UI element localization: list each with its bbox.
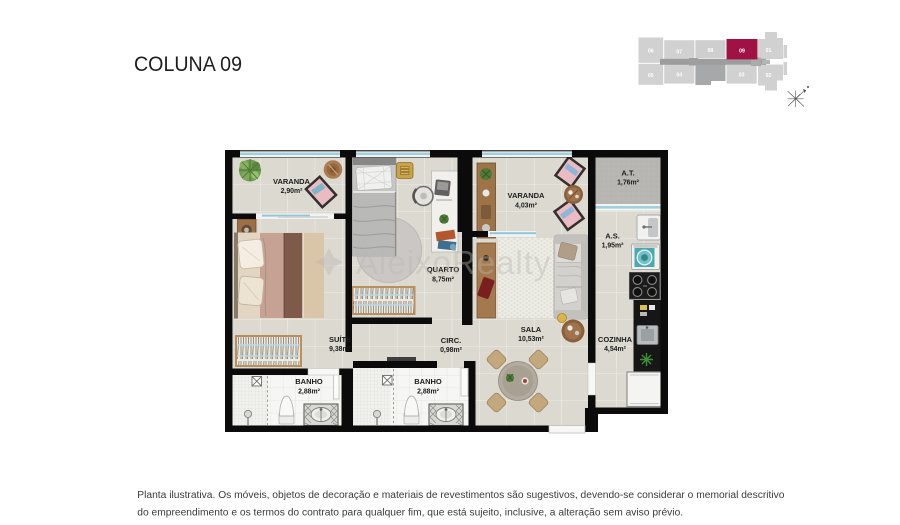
svg-text:0,98m²: 0,98m² bbox=[440, 347, 463, 354]
svg-text:1,76m²: 1,76m² bbox=[617, 180, 640, 187]
svg-text:2,88m²: 2,88m² bbox=[417, 389, 440, 396]
svg-text:2,90m²: 2,90m² bbox=[281, 188, 304, 195]
svg-text:08: 08 bbox=[708, 48, 714, 54]
svg-text:05: 05 bbox=[648, 73, 654, 79]
svg-text:AleixoRealty: AleixoRealty bbox=[356, 244, 551, 281]
svg-text:BANHO: BANHO bbox=[295, 377, 323, 386]
svg-text:2,88m²: 2,88m² bbox=[298, 389, 321, 396]
svg-text:A.T.: A.T. bbox=[621, 169, 634, 178]
svg-text:A.S.: A.S. bbox=[605, 232, 620, 241]
svg-text:do empreendimento e os termos: do empreendimento e os termos do contrat… bbox=[137, 508, 683, 519]
svg-text:COLUNA 09: COLUNA 09 bbox=[134, 52, 242, 76]
svg-text:10,53m²: 10,53m² bbox=[518, 336, 544, 343]
svg-text:VARANDA: VARANDA bbox=[508, 191, 546, 200]
svg-text:04: 04 bbox=[676, 73, 682, 79]
svg-text:VARANDA: VARANDA bbox=[273, 177, 311, 186]
svg-text:4,54m²: 4,54m² bbox=[604, 346, 627, 353]
svg-text:CIRC.: CIRC. bbox=[441, 336, 461, 345]
svg-text:07: 07 bbox=[676, 50, 682, 56]
svg-text:Planta ilustrativa. Os móveis,: Planta ilustrativa. Os móveis, objetos d… bbox=[137, 490, 784, 501]
svg-text:COZINHA: COZINHA bbox=[598, 335, 633, 344]
svg-text:09: 09 bbox=[739, 48, 745, 54]
svg-text:06: 06 bbox=[648, 49, 654, 55]
svg-text:SALA: SALA bbox=[521, 325, 542, 334]
svg-text:9,38m²: 9,38m² bbox=[329, 346, 352, 353]
svg-text:1,95m²: 1,95m² bbox=[602, 243, 625, 250]
svg-text:01: 01 bbox=[766, 48, 772, 54]
svg-text:03: 03 bbox=[739, 73, 745, 79]
svg-text:BANHO: BANHO bbox=[414, 377, 442, 386]
svg-text:02: 02 bbox=[766, 73, 772, 79]
svg-text:4,03m²: 4,03m² bbox=[515, 203, 538, 210]
svg-text:SUÍTE: SUÍTE bbox=[329, 335, 351, 344]
